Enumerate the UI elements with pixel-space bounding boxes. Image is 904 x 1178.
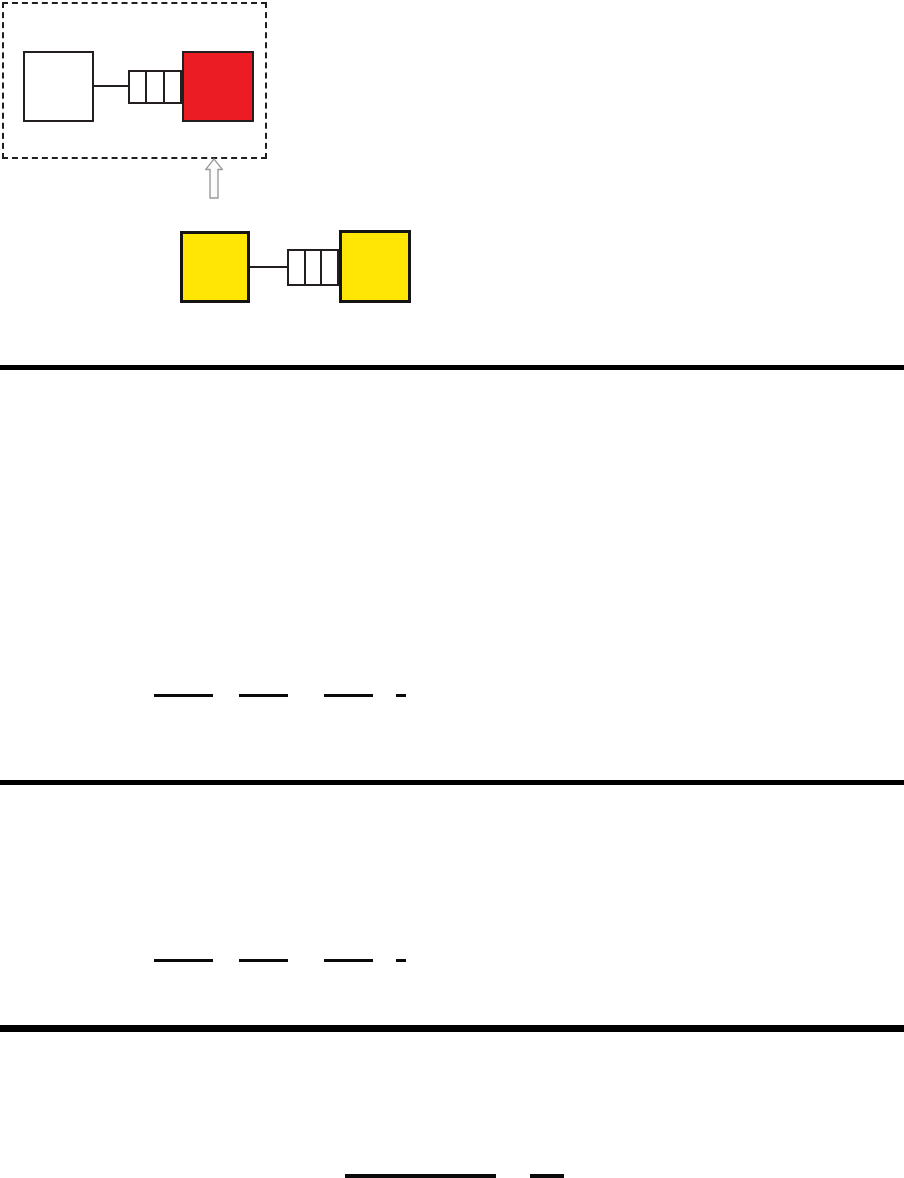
blank-answer-line <box>396 694 406 697</box>
coupler-cell <box>289 251 304 284</box>
white-block <box>23 51 94 122</box>
document-page <box>0 0 904 1178</box>
blank-answer-line <box>396 959 406 962</box>
blank-answer-line <box>324 959 373 962</box>
bottom-answer-line <box>345 1174 496 1178</box>
blank-answer-line <box>239 694 288 697</box>
blank-answer-line <box>154 694 213 697</box>
blank-answer-line <box>239 959 288 962</box>
coupler-box <box>287 249 339 286</box>
yellow-block-left <box>180 231 250 303</box>
section-divider <box>0 365 904 370</box>
connector-line <box>94 85 130 87</box>
red-block <box>182 51 254 122</box>
up-arrow-icon <box>205 158 223 199</box>
section-divider <box>0 1025 904 1032</box>
section-divider <box>0 780 904 785</box>
blank-answer-line <box>324 694 373 697</box>
bottom-answer-line <box>530 1174 564 1178</box>
yellow-block-right <box>339 230 411 303</box>
coupler-cell <box>130 72 145 102</box>
coupler-cell <box>145 72 162 102</box>
blank-answer-line <box>154 959 213 962</box>
coupler-cell <box>320 251 337 284</box>
connector-line <box>250 266 287 268</box>
dashed-frame <box>2 2 267 159</box>
coupler-box <box>128 70 182 104</box>
coupler-cell <box>304 251 321 284</box>
coupler-cell <box>163 72 180 102</box>
